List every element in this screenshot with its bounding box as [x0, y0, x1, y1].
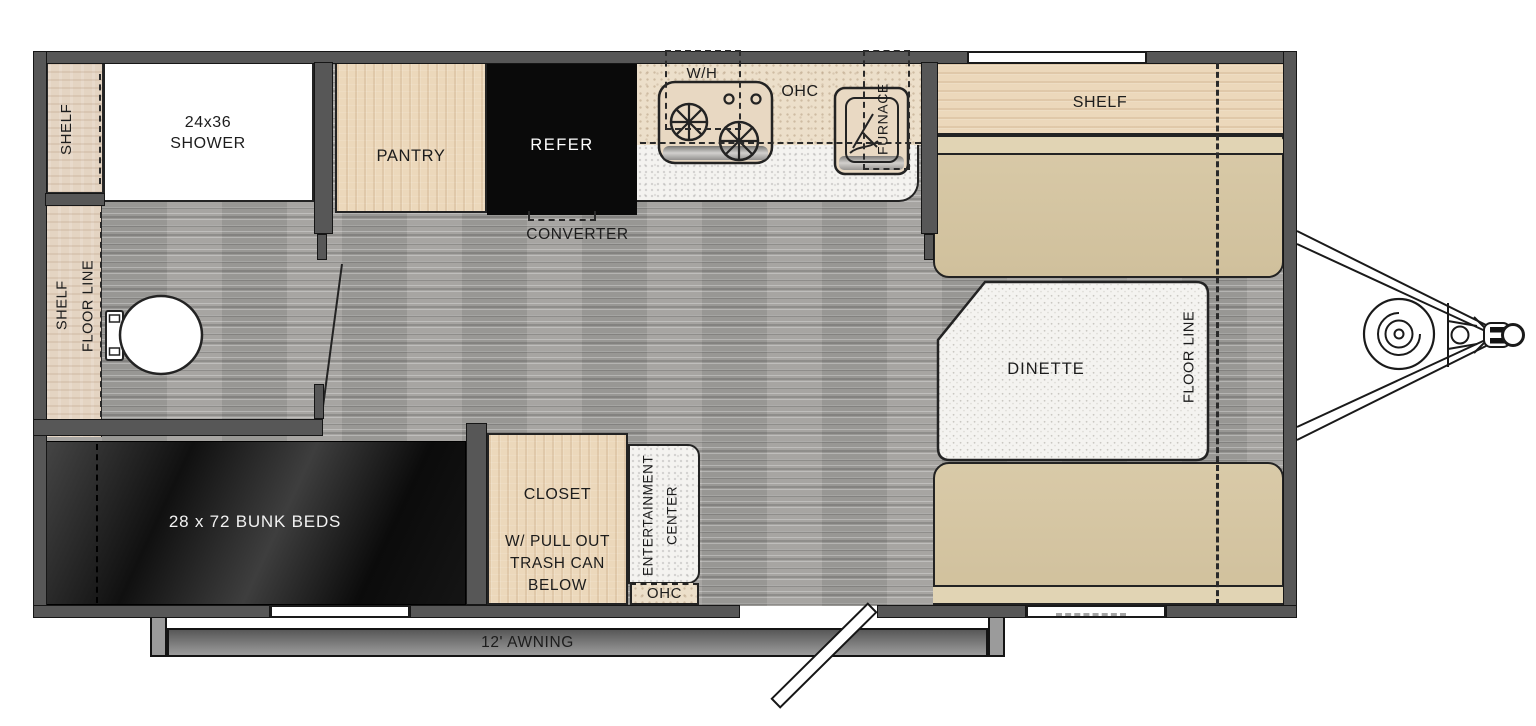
wall-kitchen-dinette: [921, 62, 938, 234]
wall-bathroom-lower-stub: [314, 384, 324, 419]
dinette-bench-bottom: [933, 462, 1284, 605]
bunk-beds-label: 28 x 72 BUNK BEDS: [60, 512, 450, 532]
bench-lip: [933, 137, 1284, 155]
dashes-bottom-right: [1056, 613, 1126, 616]
wall-bathroom-right-stub: [317, 234, 327, 260]
wall-bottom-1: [33, 605, 270, 618]
converter-label: CONVERTER: [505, 227, 650, 244]
front-shelf-label: SHELF: [1010, 94, 1190, 112]
furnace-label: FURNACE: [872, 67, 894, 171]
wall-bottom-4: [1166, 605, 1297, 618]
dinette-bench-top: [933, 135, 1284, 278]
closet-label-2: W/ PULL OUT: [487, 534, 628, 551]
water-heater-label: W/H: [672, 66, 732, 82]
floorplan-canvas: SHELF 24x36 SHOWER PANTRY REFER CONVERTE…: [0, 0, 1536, 726]
entertainment-center-label-1: ENTERTAINMENT: [639, 450, 658, 580]
window-front-top: [967, 51, 1147, 64]
pantry-cabinet: [335, 62, 487, 213]
wall-bottom-2: [410, 605, 740, 618]
pantry-label: PANTRY: [335, 148, 487, 166]
converter-dashed-bracket: [528, 211, 596, 221]
wall-bottom-3: [877, 605, 1026, 618]
wall-left: [33, 51, 47, 618]
entertainment-center-label-2: CENTER: [663, 450, 682, 580]
awning-right-cap: [988, 615, 1005, 657]
wall-right: [1283, 51, 1297, 618]
shower-size-label: 24x36: [108, 114, 308, 132]
awning-label: 12' AWNING: [440, 633, 615, 653]
window-dinette: [1026, 605, 1166, 618]
coupler-jack-icon: [1484, 323, 1524, 347]
bench-lip: [933, 585, 1284, 603]
dashes-floor-line-front: [1216, 63, 1219, 605]
closet-label: CLOSET: [487, 486, 628, 504]
wall-kitchen-dinette-stub: [924, 234, 934, 260]
bath-floor-line-label: FLOOR LINE: [79, 249, 99, 363]
dashes-shelf-top-left: [99, 74, 101, 184]
kitchen-ohc-label: OHC: [770, 84, 830, 101]
closet-label-3: TRASH CAN: [487, 556, 628, 573]
closet-label-4: BELOW: [487, 578, 628, 595]
entry-ohc-label: OHC: [630, 585, 699, 603]
shower: [103, 62, 314, 202]
front-floor-line-label: FLOOR LINE: [1180, 296, 1200, 418]
wall-bath-bunk: [33, 419, 323, 436]
dashes-floor-line-bath: [100, 212, 102, 417]
propane-tank-icon: [1364, 299, 1434, 369]
wall-bunk-closet: [466, 423, 487, 605]
bath-shelf-top-label: SHELF: [56, 83, 78, 175]
awning-left-cap: [150, 615, 167, 657]
window-bunk: [270, 605, 410, 618]
water-heater-dashed-box: [665, 50, 741, 130]
dinette-label: DINETTE: [988, 361, 1104, 379]
shower-label: SHOWER: [108, 135, 308, 153]
refer-label: REFER: [487, 137, 637, 155]
trailer-tongue: [1297, 231, 1524, 440]
wall-bathroom-right: [314, 62, 333, 234]
bath-shelf-label: SHELF: [53, 257, 73, 354]
wall-shelf-divider: [45, 193, 105, 206]
